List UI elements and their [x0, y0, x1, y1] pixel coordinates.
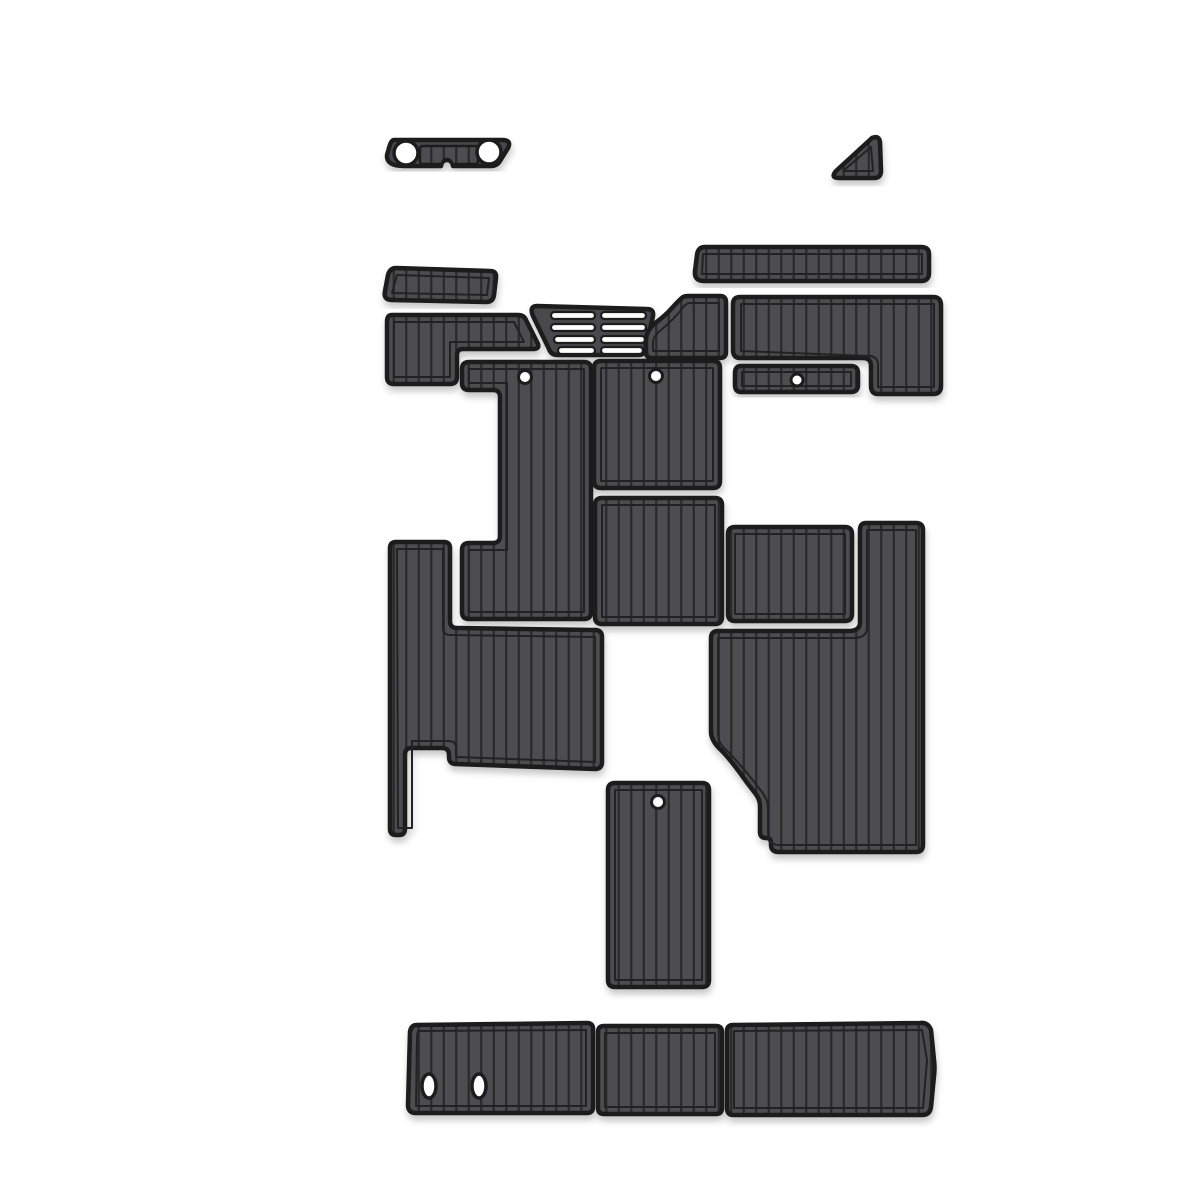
grate-slot	[601, 312, 646, 319]
grate-slot	[551, 312, 595, 319]
pad-mid-deck	[595, 498, 722, 624]
pad-gunwale-strip	[695, 247, 929, 281]
grate-slot	[601, 324, 646, 331]
pad-swim-platform-left	[408, 1023, 593, 1113]
oval-drain-hole	[472, 1074, 486, 1098]
pad-swim-platform-right	[727, 1023, 935, 1115]
oval-drain-hole	[422, 1074, 436, 1098]
pad-shape	[695, 247, 929, 281]
pad-transition-boot	[646, 296, 726, 358]
screw-hole	[791, 374, 803, 386]
pad-shape	[595, 498, 722, 624]
bow-hatch-hole	[394, 141, 418, 165]
grate-slot	[558, 347, 595, 354]
pad-swim-platform-center	[598, 1026, 722, 1114]
pad-side-bench	[728, 527, 852, 621]
pad-seat-base	[594, 361, 720, 488]
screw-hole	[650, 370, 663, 383]
pad-shape	[462, 362, 591, 619]
pad-shape	[608, 783, 709, 987]
grate-slot	[551, 324, 595, 331]
grate-slot	[601, 336, 645, 343]
pad-bow-step	[387, 140, 509, 166]
pad-locker-lid	[735, 366, 858, 392]
bow-hatch-hole	[477, 140, 501, 164]
pad-console	[462, 362, 591, 619]
grate-slot	[554, 336, 595, 343]
pad-corner-triangle	[834, 137, 881, 178]
pad-shape	[728, 527, 852, 621]
pad-shape	[385, 268, 496, 302]
pad-shape	[727, 1023, 935, 1115]
pad-shape	[598, 1026, 722, 1114]
pad-vent-grate	[532, 306, 653, 355]
pad-side-step	[385, 268, 496, 302]
grate-slot	[601, 347, 643, 354]
boat-decking-pad-kit-canvas	[0, 0, 1200, 1200]
pad-shape	[408, 1023, 593, 1113]
pad-engine-hatch	[608, 783, 709, 987]
screw-hole	[652, 796, 665, 809]
screw-hole	[519, 371, 532, 384]
